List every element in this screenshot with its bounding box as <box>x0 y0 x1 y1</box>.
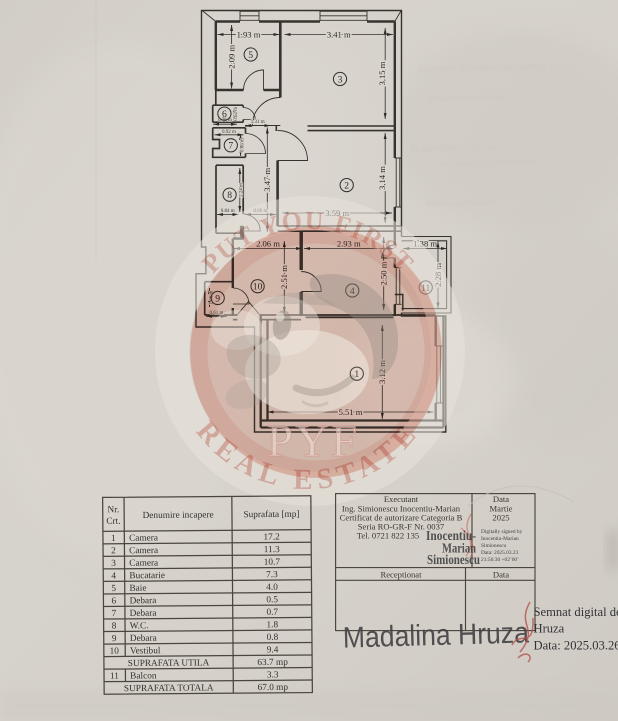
svg-text:0.5: 0.5 <box>266 595 278 605</box>
svg-text:3.47 m: 3.47 m <box>262 168 272 192</box>
svg-text:0.62 m: 0.62 m <box>234 107 239 121</box>
svg-text:2: 2 <box>344 180 349 191</box>
svg-text:Debara: Debara <box>130 596 157 606</box>
svg-text:2: 2 <box>111 546 116 556</box>
svg-text:7: 7 <box>112 609 117 619</box>
svg-text:1.8: 1.8 <box>266 620 278 630</box>
svg-text:Madalina Hruza: Madalina Hruza <box>342 616 529 654</box>
svg-text:Suprafata [mp]: Suprafata [mp] <box>243 509 299 520</box>
svg-text:17.2: 17.2 <box>263 533 280 543</box>
svg-text:0.7: 0.7 <box>266 608 278 618</box>
svg-text:11.3: 11.3 <box>264 545 280 555</box>
svg-text:67.0 mp: 67.0 mp <box>258 683 289 693</box>
svg-text:Balcon: Balcon <box>130 671 157 681</box>
svg-text:Inocentiu-Marian: Inocentiu-Marian <box>481 536 519 542</box>
svg-text:se va executa in regie: se va executa in regie <box>429 92 507 103</box>
svg-text:1: 1 <box>354 369 359 380</box>
svg-text:0.8: 0.8 <box>267 633 279 643</box>
svg-text:6: 6 <box>222 109 227 120</box>
svg-text:Bucatarie: Bucatarie <box>129 571 165 581</box>
svg-text:Camera: Camera <box>129 559 158 569</box>
svg-text:Data: Data <box>493 494 509 504</box>
svg-text:Denumire incapere: Denumire incapere <box>143 510 214 521</box>
svg-text:W.C.: W.C. <box>130 621 149 631</box>
svg-text:beneficiarul lucrarii: beneficiarul lucrarii <box>426 197 498 208</box>
svg-text:3.14 m: 3.14 m <box>377 166 387 190</box>
svg-text:Digitally signed by: Digitally signed by <box>481 529 523 535</box>
svg-text:Camera: Camera <box>129 546 158 556</box>
svg-text:5: 5 <box>111 584 116 594</box>
svg-text:10: 10 <box>110 647 120 657</box>
svg-text:0.86 m: 0.86 m <box>241 138 246 152</box>
svg-text:11: 11 <box>110 672 119 682</box>
svg-text:de autorizare nr. din data: de autorizare nr. din data <box>410 142 499 154</box>
svg-text:Data: 2025.03.23: Data: 2025.03.23 <box>481 550 519 556</box>
svg-text:Crt.: Crt. <box>106 517 120 527</box>
svg-text:Receptionat: Receptionat <box>380 570 422 580</box>
svg-text:1: 1 <box>111 534 116 544</box>
svg-text:3: 3 <box>111 559 116 569</box>
svg-text:9: 9 <box>112 634 117 644</box>
svg-text:Camera: Camera <box>129 533 158 543</box>
svg-text:Semnat digital de: Semnat digital de <box>534 605 618 619</box>
svg-text:PYF: PYF <box>267 415 359 467</box>
svg-text:3.3: 3.3 <box>267 670 279 680</box>
svg-text:7: 7 <box>228 141 233 152</box>
svg-text:2.09 m: 2.09 m <box>227 45 237 69</box>
svg-text:1.31 m: 1.31 m <box>251 120 265 125</box>
svg-text:1.93 m: 1.93 m <box>237 29 261 39</box>
svg-text:cu respectarea prevederilor: cu respectarea prevederilor <box>440 156 538 168</box>
svg-text:Debara: Debara <box>130 634 157 644</box>
svg-text:3.41 m: 3.41 m <box>327 29 351 39</box>
svg-text:0.92 m: 0.92 m <box>222 130 236 135</box>
svg-text:Tel. 0721 822 135: Tel. 0721 822 135 <box>357 531 419 541</box>
svg-text:10.7: 10.7 <box>264 558 281 568</box>
svg-text:Data: Data <box>493 570 509 580</box>
svg-text:Data: 2025.03.26: Data: 2025.03.26 <box>534 639 618 653</box>
svg-text:SUPRAFATA UTILA: SUPRAFATA UTILA <box>128 658 210 669</box>
svg-text:Simionescu: Simionescu <box>427 552 480 567</box>
svg-text:Baie: Baie <box>129 584 146 594</box>
svg-text:4: 4 <box>111 571 116 581</box>
svg-text:Executant: Executant <box>384 494 419 504</box>
svg-text:3: 3 <box>338 74 343 85</box>
svg-text:8: 8 <box>112 622 117 632</box>
svg-text:0.84 m: 0.84 m <box>221 209 235 214</box>
svg-text:2025: 2025 <box>492 513 509 523</box>
svg-text:9.4: 9.4 <box>267 645 279 655</box>
svg-text:8: 8 <box>227 190 232 201</box>
svg-text:7.3: 7.3 <box>266 570 278 580</box>
svg-text:2.24 m: 2.24 m <box>240 183 245 197</box>
svg-text:Hruza: Hruza <box>534 622 565 636</box>
svg-text:SUPRAFATA TOTALA: SUPRAFATA TOTALA <box>124 683 214 694</box>
svg-text:4.0: 4.0 <box>266 583 278 593</box>
svg-text:Vestibul: Vestibul <box>130 646 161 656</box>
svg-text:6: 6 <box>111 596 116 606</box>
svg-text:Simionescu: Simionescu <box>481 543 506 549</box>
svg-text:63.7 mp: 63.7 mp <box>257 658 288 668</box>
svg-text:21:56:30 +02’00’: 21:56:30 +02’00’ <box>481 557 519 563</box>
svg-text:Nr.: Nr. <box>107 505 119 515</box>
svg-text:5: 5 <box>248 50 253 61</box>
svg-text:Debara: Debara <box>130 609 157 619</box>
svg-text:3.15 m: 3.15 m <box>377 61 387 85</box>
